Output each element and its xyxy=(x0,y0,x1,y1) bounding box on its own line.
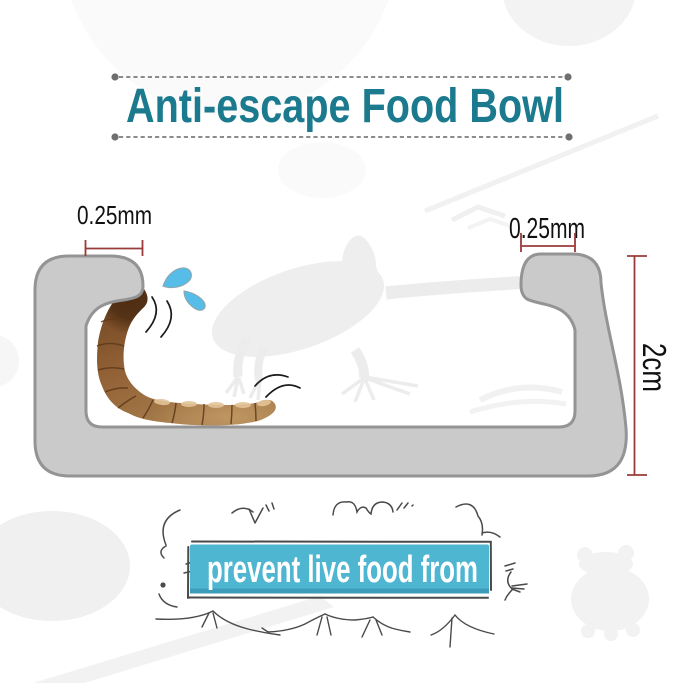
svg-text:2cm: 2cm xyxy=(636,343,673,392)
svg-text:0.25mm: 0.25mm xyxy=(77,200,152,230)
svg-text:Anti-escape Food Bowl: Anti-escape Food Bowl xyxy=(126,80,564,133)
svg-text:prevent live food from: prevent live food from xyxy=(207,549,478,591)
